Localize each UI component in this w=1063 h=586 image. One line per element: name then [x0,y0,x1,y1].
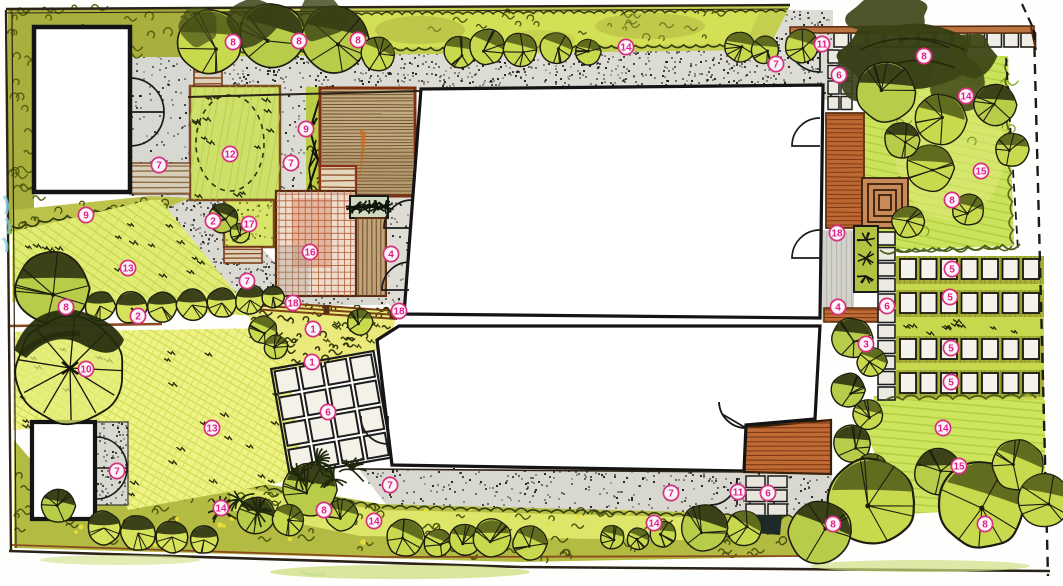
svg-text:1: 1 [309,358,315,369]
svg-text:9: 9 [83,211,89,222]
svg-text:5: 5 [947,293,953,304]
svg-text:13: 13 [122,264,134,275]
svg-text:7: 7 [156,161,162,172]
svg-text:12: 12 [224,150,236,161]
svg-text:15: 15 [953,462,965,473]
svg-text:7: 7 [773,60,779,71]
svg-text:18: 18 [393,307,405,318]
svg-text:5: 5 [948,378,954,389]
svg-text:7: 7 [114,467,120,478]
svg-text:13: 13 [206,424,218,435]
svg-text:4: 4 [388,250,394,261]
svg-text:18: 18 [831,229,843,240]
svg-text:18: 18 [287,299,299,310]
svg-text:7: 7 [244,277,250,288]
svg-text:5: 5 [949,265,955,276]
svg-text:9: 9 [303,125,309,136]
svg-text:8: 8 [230,38,236,49]
svg-text:15: 15 [975,167,987,178]
svg-text:8: 8 [982,520,988,531]
svg-text:6: 6 [836,71,842,82]
svg-text:14: 14 [368,517,380,528]
svg-text:14: 14 [937,424,949,435]
svg-text:6: 6 [884,302,890,313]
svg-text:14: 14 [215,504,227,515]
svg-text:8: 8 [321,506,327,517]
svg-text:7: 7 [288,159,294,170]
svg-text:11: 11 [733,488,744,499]
svg-text:8: 8 [921,52,927,63]
svg-text:7: 7 [668,489,674,500]
svg-text:8: 8 [949,196,955,207]
svg-text:5: 5 [948,344,954,355]
svg-text:2: 2 [135,312,141,323]
svg-text:11: 11 [817,40,828,51]
svg-text:3: 3 [863,340,869,351]
svg-text:14: 14 [960,92,972,103]
svg-text:17: 17 [243,220,255,231]
svg-text:8: 8 [296,37,302,48]
svg-text:8: 8 [355,36,361,47]
svg-text:8: 8 [830,520,836,531]
svg-text:6: 6 [325,408,331,419]
svg-text:14: 14 [648,519,660,530]
svg-text:2: 2 [210,217,216,228]
svg-text:16: 16 [304,248,316,259]
svg-text:10: 10 [80,365,92,376]
svg-text:4: 4 [835,303,841,314]
svg-text:7: 7 [387,481,393,492]
svg-text:6: 6 [765,489,771,500]
svg-text:1: 1 [310,325,316,336]
svg-text:8: 8 [63,303,69,314]
svg-text:14: 14 [620,43,632,54]
